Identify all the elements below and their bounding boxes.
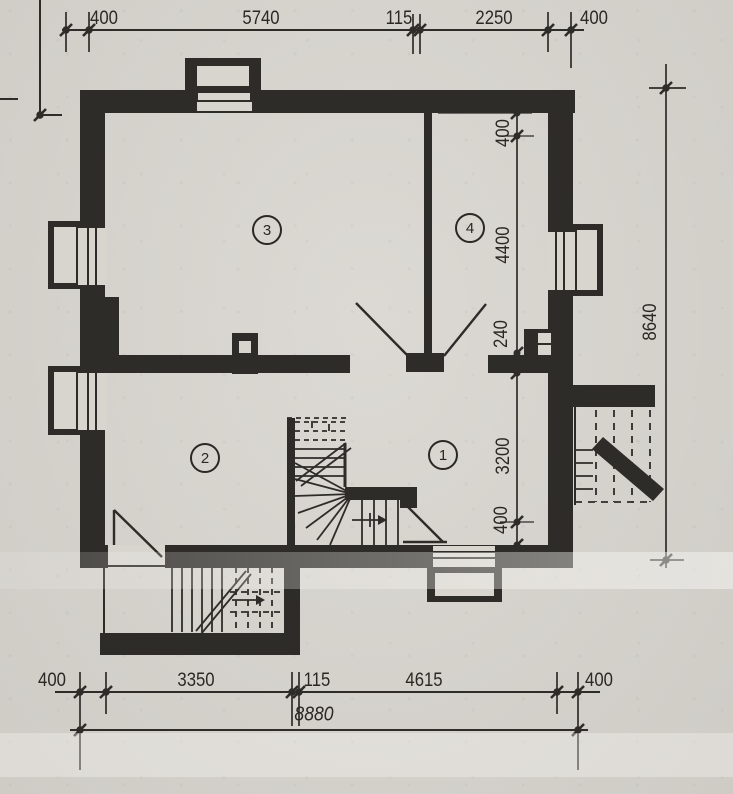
room-number-1: 1 (439, 447, 447, 464)
dim-top-400-left: 400 (90, 8, 118, 30)
dim-top-2250: 2250 (475, 8, 512, 30)
dim-bottom-total-8880: 8880 (294, 704, 333, 727)
room-number-3: 3 (263, 222, 271, 239)
dim-top-115: 115 (386, 8, 413, 30)
dim-bottom-400-left: 400 (38, 670, 66, 692)
dim-right-400-bottom: 400 (491, 506, 513, 534)
room-tag-4: 4 (455, 213, 485, 243)
room-number-4: 4 (466, 220, 474, 237)
room-number-2: 2 (201, 450, 209, 467)
floor-plan-linework (0, 0, 733, 794)
room-tag-1: 1 (428, 440, 458, 470)
dim-top-5740: 5740 (242, 8, 279, 30)
floor-plan-sheet: 400 5740 115 2250 400 400 4400 240 3200 … (0, 0, 733, 794)
room-tag-2: 2 (190, 443, 220, 473)
dim-bottom-400-right: 400 (585, 670, 613, 692)
dim-bottom-3350: 3350 (177, 670, 214, 692)
room-tag-3: 3 (252, 215, 282, 245)
dim-right-outer-8640: 8640 (640, 303, 662, 340)
dim-bottom-115: 115 (304, 670, 331, 692)
dim-top-400-right: 400 (580, 8, 608, 30)
dim-right-400-top: 400 (493, 119, 515, 147)
dim-right-4400: 4400 (493, 226, 515, 263)
dim-right-240: 240 (491, 320, 513, 348)
dim-bottom-4615: 4615 (405, 670, 442, 692)
dim-right-3200: 3200 (493, 437, 515, 474)
